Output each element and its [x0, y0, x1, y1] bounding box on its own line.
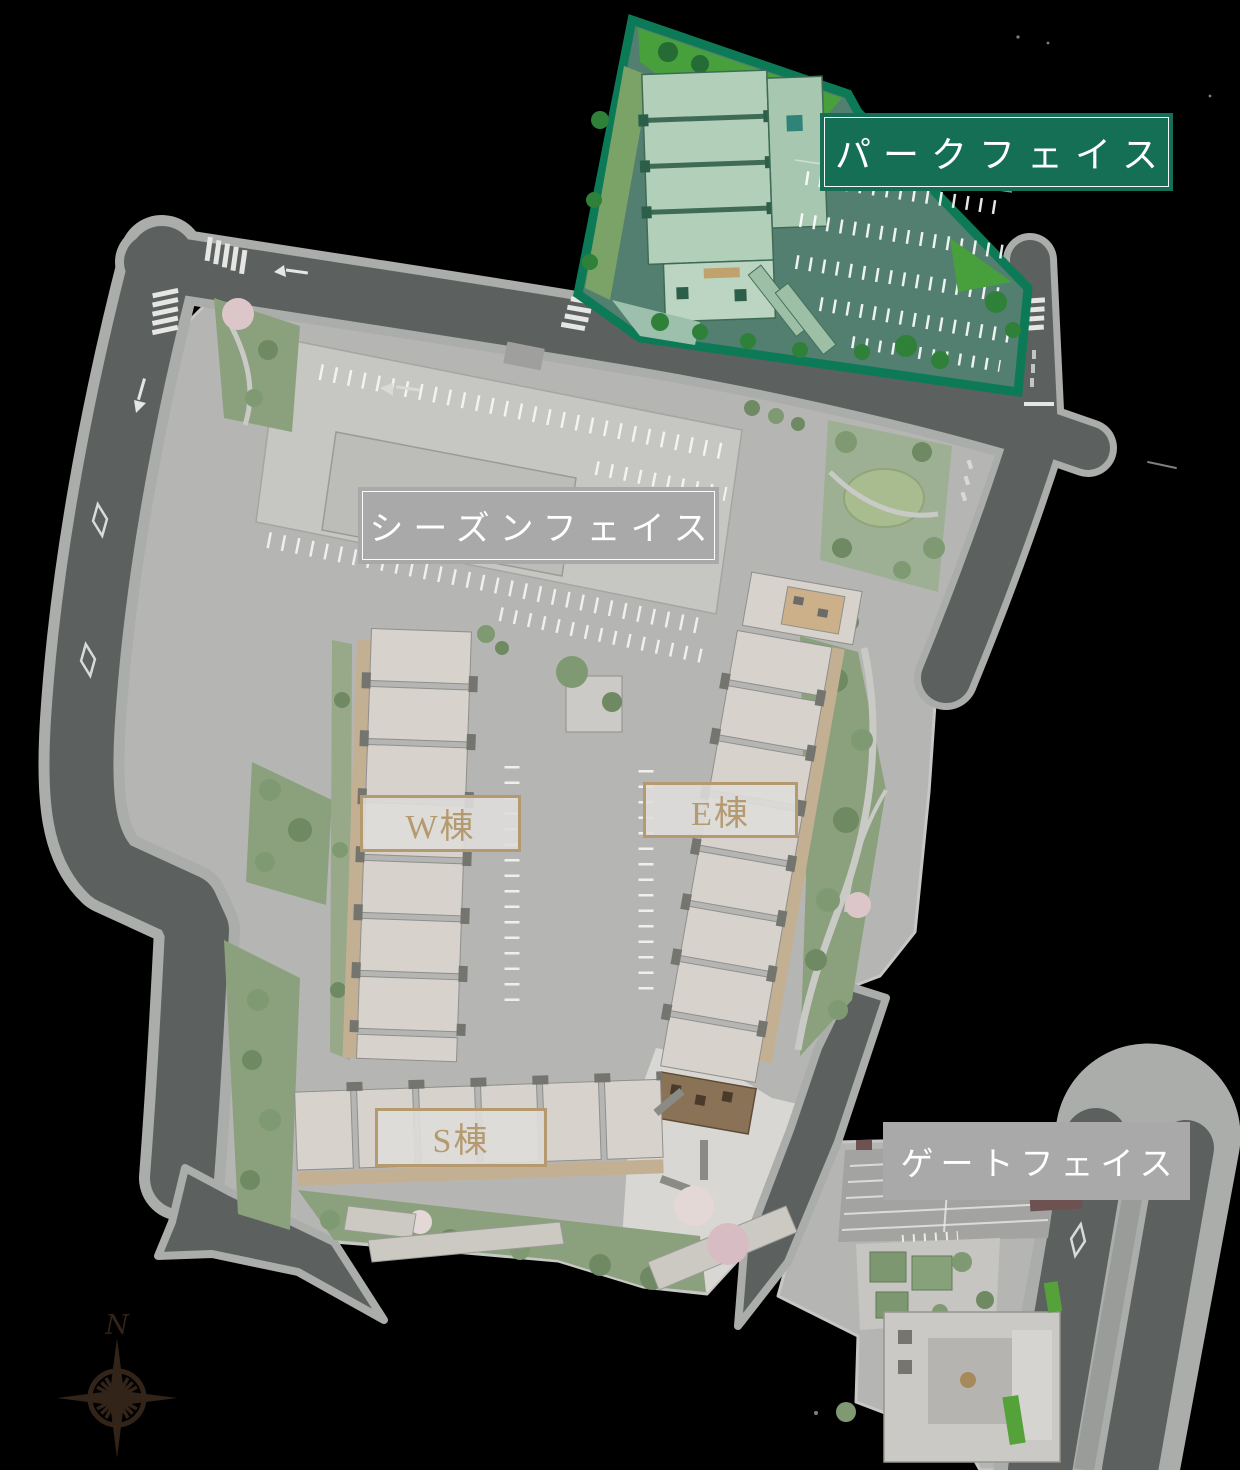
building-s-label-text: S棟: [433, 1113, 490, 1162]
building-w-label-text: W棟: [405, 799, 475, 848]
season-face-label-text: シーズンフェイス: [369, 501, 717, 550]
building-w-label: W棟: [360, 795, 521, 852]
park-face-label-text: パークフェイス: [835, 126, 1170, 178]
compass-rose-icon: [55, 1336, 179, 1460]
site-plan-page: パークフェイス シーズンフェイス ゲートフェイス W棟 E棟 S棟 N: [0, 0, 1240, 1470]
gate-face-label-text: ゲートフェイス: [900, 1137, 1179, 1185]
site-map: [0, 0, 1240, 1470]
gate-face-label[interactable]: ゲートフェイス: [883, 1122, 1190, 1200]
building-e-label-text: E棟: [691, 786, 750, 835]
park-face-area[interactable]: [578, 20, 1028, 392]
building-s-label: S棟: [375, 1108, 547, 1167]
building-e-label: E棟: [643, 782, 798, 838]
park-face-label[interactable]: パークフェイス: [820, 113, 1173, 191]
season-face-label[interactable]: シーズンフェイス: [358, 487, 719, 564]
